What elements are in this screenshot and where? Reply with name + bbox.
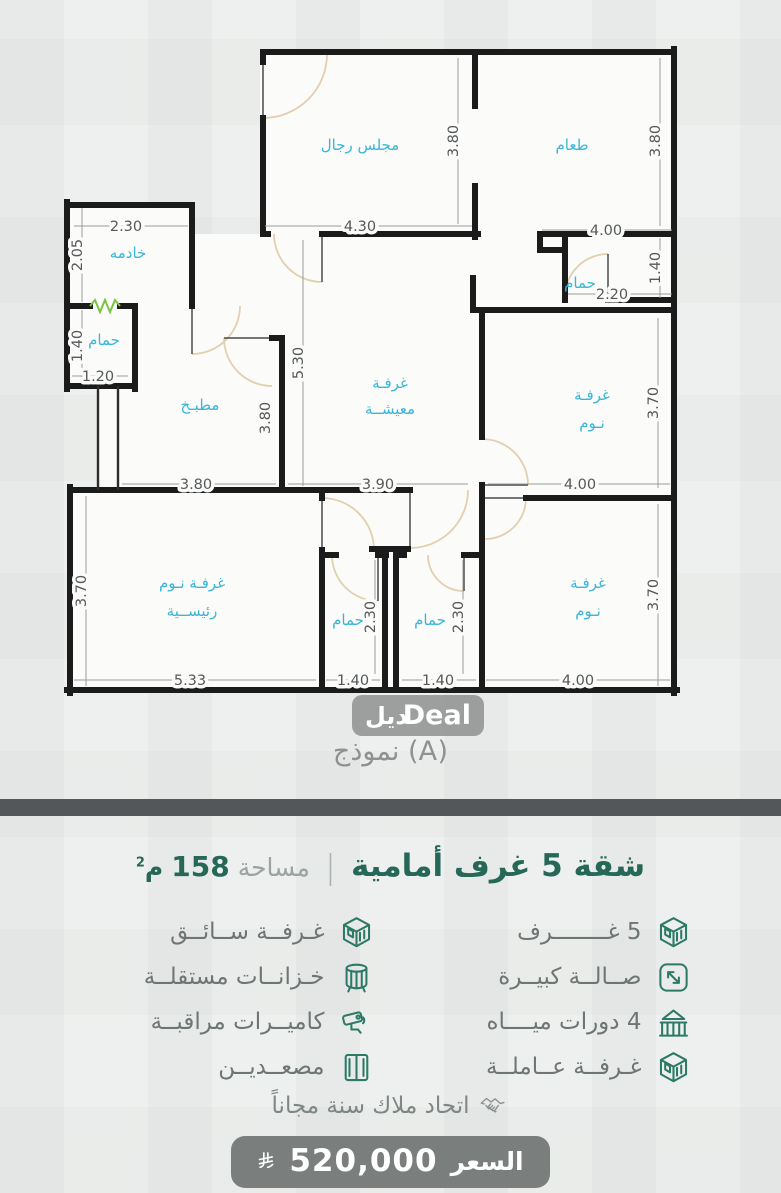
room-label-bathB: حمام	[414, 611, 446, 629]
room-label-bedroom1-1: غرفـة	[574, 386, 610, 404]
dim-hall-height: 5.30	[291, 347, 307, 379]
feature-label: 4 دورات ميــــاه	[486, 1009, 641, 1035]
handshake-icon	[479, 1093, 509, 1119]
feature-label: 5 غــــــــرف	[517, 919, 641, 945]
watermark-arabic: ديل	[365, 702, 408, 730]
dim-majlis-height: 3.80	[446, 125, 462, 157]
dim-bedroom2-height: 3.70	[646, 579, 662, 611]
room-label-majlis: مجلس رجال	[321, 136, 400, 154]
area-label: مساحة	[238, 853, 310, 882]
dim-kitchen-height: 3.80	[258, 402, 274, 434]
dim-dining-width: 4.00	[590, 223, 622, 239]
flyer-canvas: 4.30 4.00 2.30 2.20 1.20 3.80 3.90 4.00 …	[0, 0, 781, 1193]
feature-label: مصعــديــن	[218, 1054, 324, 1080]
elevator-icon	[339, 1050, 374, 1085]
price-pill: السعر 520,000	[231, 1136, 549, 1188]
feature-label: كاميــرات مراقبــة	[151, 1009, 325, 1035]
dim-maid-bath-width: 1.20	[82, 369, 114, 385]
feature-worker-room: غـرفــة عــاملــة	[408, 1049, 691, 1085]
area-info: مساحة 158 م2	[136, 850, 310, 883]
dim-bedroom1-height: 3.70	[646, 387, 662, 419]
features-grid: 5 غــــــــرف غـرفــة ســائــق صــالــة …	[91, 914, 691, 1085]
watermark-latin: Deal	[403, 700, 471, 731]
feature-tanks: خـزانــات مستقلــة	[91, 959, 374, 995]
feature-rooms: 5 غــــــــرف	[408, 914, 691, 950]
dim-bath-top-width: 2.20	[596, 287, 628, 303]
title-separator: |	[325, 850, 336, 883]
dim-living-width: 3.90	[362, 477, 394, 493]
room-label-kitchen: مطبـخ	[181, 396, 220, 414]
room-label-master-1: غرفـة نـوم	[159, 574, 225, 592]
dim-maid-width: 2.30	[110, 219, 142, 235]
dim-bath-top-height: 1.40	[648, 252, 664, 284]
bonus-row: اتحاد ملاك سنة مجاناً	[0, 1093, 781, 1119]
bathhouse-icon	[656, 1005, 691, 1040]
dim-maid-height: 2.05	[70, 239, 86, 271]
feature-label: خـزانــات مستقلــة	[144, 964, 325, 990]
saudi-riyal-symbol	[257, 1150, 276, 1172]
feature-cctv: كاميــرات مراقبــة	[91, 1004, 374, 1040]
feature-driver-room: غـرفــة ســائــق	[91, 914, 374, 950]
dim-kitchen-width: 3.80	[180, 477, 212, 493]
feature-elevators: مصعــديــن	[91, 1049, 374, 1085]
dim-bedroom1-width: 4.00	[564, 477, 596, 493]
price-value: 520,000	[289, 1143, 437, 1179]
dim-bathA-width: 1.40	[337, 673, 369, 689]
area-value: 158	[171, 850, 229, 883]
section-divider	[0, 799, 781, 816]
title-row: شقة 5 غرف أمامية | مساحة 158 م2	[0, 848, 781, 884]
dim-majlis-width: 4.30	[344, 219, 376, 235]
room-label-bath-top: حمام	[564, 274, 596, 292]
dim-bathA-height: 2.30	[363, 601, 379, 633]
feature-label: غـرفــة ســائــق	[170, 919, 324, 945]
room-label-master-2: رئيســية	[167, 602, 218, 620]
room-label-living-2: معيشــة	[365, 400, 415, 418]
bonus-label: اتحاد ملاك سنة مجاناً	[272, 1093, 470, 1119]
dim-dining-height: 3.80	[648, 125, 664, 157]
cctv-camera-icon	[339, 1005, 374, 1040]
feature-bathrooms: 4 دورات ميــــاه	[408, 1004, 691, 1040]
dim-bedroom2-width: 4.00	[562, 673, 594, 689]
feature-label: صــالــة كبيــرة	[498, 964, 641, 990]
dim-bathB-width: 1.40	[422, 673, 454, 689]
room-label-living-1: غرفـة	[372, 374, 408, 392]
dim-bathB-height: 2.30	[451, 601, 467, 633]
cube-building-icon	[656, 915, 691, 950]
cube-building-icon	[656, 1050, 691, 1085]
area-unit: م2	[136, 853, 163, 882]
room-label-bathA: حمام	[332, 611, 364, 629]
dim-master-height: 3.70	[74, 575, 90, 607]
price-label: السعر	[451, 1147, 524, 1176]
deal-watermark: ديل Deal	[352, 695, 484, 736]
room-label-maid: خادمه	[110, 244, 147, 262]
expand-arrows-icon	[656, 960, 691, 995]
feature-label: غـرفــة عــاملــة	[486, 1054, 642, 1080]
room-label-bedroom2-2: نـوم	[575, 602, 601, 620]
floor-plan: 4.30 4.00 2.30 2.20 1.20 3.80 3.90 4.00 …	[60, 38, 682, 698]
room-label-maid-bath: حمام	[88, 331, 120, 349]
dim-master-width: 5.33	[174, 673, 206, 689]
cube-building-icon	[339, 915, 374, 950]
model-label: نموذج (A)	[0, 736, 781, 767]
page-title: شقة 5 غرف أمامية	[351, 848, 645, 884]
water-tank-icon	[339, 960, 374, 995]
feature-large-hall: صــالــة كبيــرة	[408, 959, 691, 995]
room-label-bedroom1-2: نـوم	[579, 414, 605, 432]
dim-maid-bath-height: 1.40	[70, 330, 86, 362]
room-label-bedroom2-1: غرفـة	[570, 574, 606, 592]
info-section: شقة 5 غرف أمامية | مساحة 158 م2 5 غـــــ…	[0, 816, 781, 1188]
room-label-dining: طعام	[555, 136, 588, 154]
